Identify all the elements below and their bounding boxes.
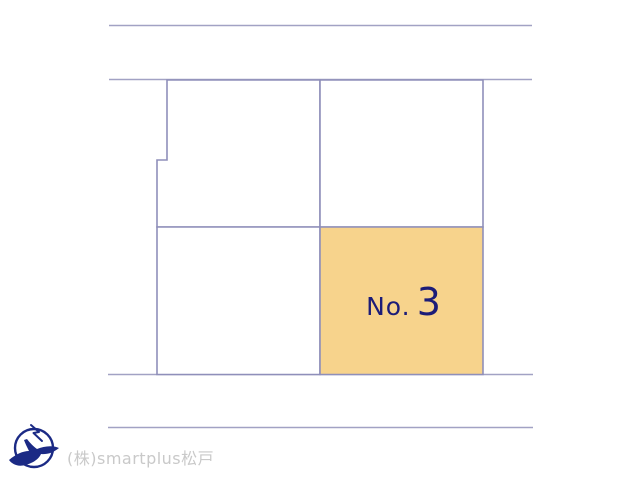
parcel-lower-left (157, 227, 320, 375)
logo-flash-stroke (31, 425, 42, 441)
site-plan-canvas: No. 3 (株)smartplus松戸 (0, 0, 640, 480)
plot-number-value: 3 (417, 280, 442, 324)
footer-branding: (株)smartplus松戸 (6, 420, 214, 476)
plot-number-prefix: No. (366, 292, 411, 321)
parcel-upper-right (320, 80, 483, 227)
company-watermark: (株)smartplus松戸 (67, 451, 214, 467)
bird-circle-logo-icon (6, 420, 62, 476)
site-plan-diagram: No. 3 (0, 0, 640, 480)
parcel-upper-left (157, 80, 320, 227)
